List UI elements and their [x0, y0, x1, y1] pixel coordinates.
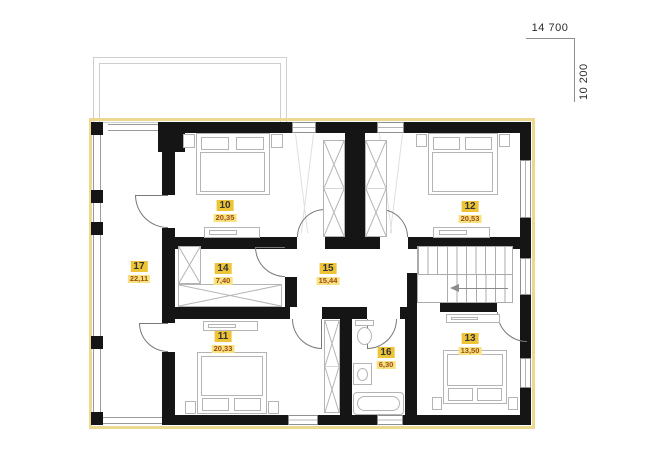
room-label-12: 12 20,53	[459, 196, 482, 223]
bed	[197, 352, 267, 414]
glazing-post	[91, 122, 103, 135]
glazing-top	[108, 124, 158, 131]
toilet-tank	[355, 320, 374, 326]
dimension-width-label: 14 700	[526, 22, 574, 34]
wall-stairs	[440, 302, 497, 312]
wardrobe-section	[366, 188, 386, 236]
wall-corner-block	[158, 122, 185, 152]
wardrobe-section	[179, 247, 200, 283]
dresser-detail	[439, 230, 467, 235]
room-number: 13	[461, 333, 478, 344]
pillow	[477, 388, 502, 401]
bed	[428, 133, 498, 195]
dresser-detail	[451, 317, 478, 320]
pillow	[236, 137, 264, 150]
wardrobe	[324, 320, 340, 413]
wall-top	[404, 122, 531, 133]
roof-outline-inner	[99, 63, 281, 123]
wall-balcony	[162, 352, 175, 425]
room-number: 12	[461, 201, 478, 212]
bed	[443, 350, 507, 404]
room-number: 16	[377, 347, 394, 358]
wall-stairs	[527, 302, 531, 312]
pillow	[202, 398, 229, 411]
glazing-left	[93, 122, 101, 425]
room-area: 13,50	[459, 347, 482, 355]
dimension-height-line	[574, 38, 575, 102]
x-pattern-icon	[324, 141, 344, 188]
sink	[353, 363, 372, 385]
room-label-17: 17 22,11	[128, 256, 150, 283]
dresser	[204, 227, 260, 238]
stair-edge-line	[447, 275, 448, 302]
glazing-post	[91, 222, 103, 235]
nightstand	[416, 134, 427, 147]
room-number: 10	[216, 200, 233, 211]
window	[520, 160, 531, 218]
floor-plan: 14 700 10 200	[0, 0, 668, 473]
wall-interior	[325, 237, 380, 249]
wall-bathroom	[405, 307, 417, 415]
mattress	[200, 152, 265, 192]
window	[520, 258, 531, 295]
dresser-detail	[209, 230, 237, 235]
nightstand	[271, 134, 283, 148]
nightstand	[183, 134, 195, 148]
wall-top	[316, 122, 377, 133]
room-number: 14	[214, 263, 231, 274]
wardrobe-section	[179, 285, 281, 306]
room-area: 15,44	[317, 277, 340, 285]
wall-right	[520, 133, 531, 160]
wall-bathroom	[340, 319, 352, 415]
x-pattern-icon	[366, 141, 386, 188]
nightstand	[268, 401, 279, 414]
window	[292, 122, 316, 133]
room-number: 15	[319, 263, 336, 274]
dimension-width-line	[526, 38, 574, 39]
stair-treads-upper	[418, 247, 512, 274]
door-leaf	[139, 323, 168, 324]
sink-basin	[357, 368, 368, 381]
nightstand	[185, 401, 196, 414]
room-area: 20,35	[214, 214, 237, 222]
wall-interior	[285, 277, 297, 307]
room-area: 6,30	[377, 361, 396, 369]
x-pattern-icon	[325, 367, 339, 412]
wall-interior	[322, 307, 367, 319]
stair-arrow-shaft	[458, 288, 508, 289]
room-label-10: 10 20,35	[214, 195, 237, 222]
wall-interior	[407, 273, 417, 307]
bathtub-basin	[357, 396, 400, 411]
room-label-16: 16 6,30	[377, 342, 396, 369]
door-leaf	[135, 195, 168, 196]
window	[520, 358, 531, 388]
x-pattern-icon	[366, 189, 386, 236]
wardrobe-section	[366, 141, 386, 188]
dresser	[446, 314, 500, 323]
wardrobe-section	[324, 188, 344, 236]
wall-interior	[345, 133, 365, 237]
wardrobe	[178, 246, 201, 284]
nightstand	[499, 134, 510, 147]
room-label-15: 15 15,44	[317, 258, 340, 285]
room-area: 7,40	[214, 277, 233, 285]
wardrobe	[323, 140, 345, 237]
wall-bottom	[318, 415, 377, 425]
room-area: 20,53	[459, 215, 482, 223]
room-area: 20,33	[212, 345, 235, 353]
wardrobe-section	[324, 141, 344, 188]
mattress	[432, 152, 493, 192]
room-label-13: 13 13,50	[459, 328, 482, 355]
nightstand	[508, 397, 518, 410]
dresser	[433, 227, 490, 238]
window	[288, 415, 318, 425]
door-leaf	[255, 247, 285, 248]
mattress	[201, 356, 263, 396]
wall-balcony	[162, 152, 175, 195]
x-pattern-icon	[325, 321, 339, 366]
window	[377, 122, 404, 133]
pillow	[448, 388, 473, 401]
glazing-bottom	[93, 417, 162, 424]
room-area: 22,11	[128, 275, 150, 283]
room-label-11: 11 20,33	[212, 326, 235, 353]
wardrobe	[365, 140, 387, 237]
pillow	[201, 137, 229, 150]
room-number: 11	[215, 331, 232, 342]
glazing-post	[91, 412, 103, 425]
glazing-post	[91, 190, 103, 203]
room-label-14: 14 7,40	[214, 258, 233, 285]
x-pattern-icon	[324, 189, 344, 236]
pillow	[433, 137, 460, 150]
wardrobe-section	[325, 366, 339, 412]
wardrobe	[178, 284, 282, 307]
wall-interior	[162, 307, 290, 319]
dimension-height-label: 10 200	[578, 63, 590, 100]
mattress	[447, 354, 503, 386]
wardrobe-section	[325, 321, 339, 366]
wall-bottom	[175, 415, 288, 425]
window	[377, 415, 403, 425]
x-pattern-icon	[179, 247, 200, 283]
pillow	[234, 398, 261, 411]
bed	[196, 133, 270, 195]
toilet	[357, 327, 372, 345]
stair-arrow-icon	[450, 284, 459, 292]
room-number: 17	[130, 261, 147, 272]
nightstand	[432, 397, 442, 410]
glazing-post	[91, 336, 103, 349]
bathtub	[353, 392, 404, 415]
pillow	[465, 137, 492, 150]
door-leaf	[321, 319, 322, 349]
wall-bottom	[403, 415, 531, 425]
x-pattern-icon	[179, 285, 281, 306]
